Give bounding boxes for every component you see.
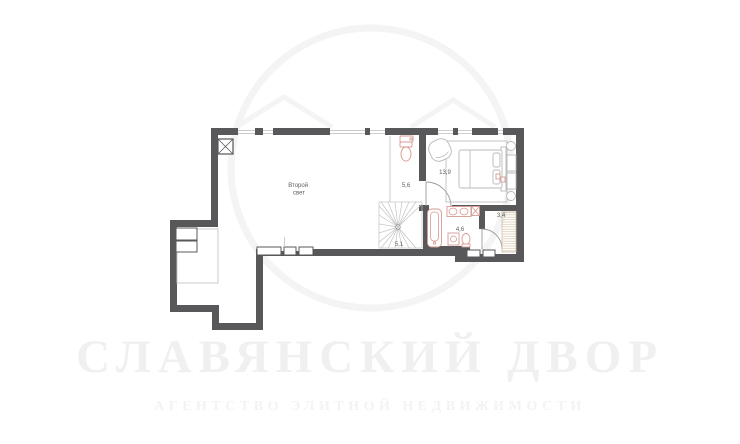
- room-area-hall: 3,4: [497, 213, 506, 219]
- duct-box: [176, 228, 197, 240]
- armchair: [426, 136, 454, 164]
- bedside-item: [496, 174, 500, 179]
- pillow: [493, 153, 500, 167]
- double-washbasin: [447, 207, 471, 217]
- bed: [459, 147, 506, 191]
- duct-box: [176, 241, 197, 252]
- room-area-stairs: 5,1: [395, 242, 404, 248]
- bathtub: [428, 209, 442, 247]
- dresser: [507, 155, 516, 171]
- bidet: [462, 234, 470, 248]
- bottom-windows: [257, 237, 313, 255]
- room-area-wc: 5,6: [402, 183, 411, 189]
- nightstand: [507, 192, 516, 201]
- bedside-item: [501, 177, 505, 182]
- wc-fixtures: [400, 136, 413, 161]
- room-label-second-light: Второй свет: [288, 182, 310, 197]
- nightstand: [507, 142, 516, 151]
- toilet-2: [448, 233, 459, 245]
- floorplan-canvas: СЛАВЯНСКИЙ ДВОР АГЕНТСТВО ЭЛИТНОЙ НЕДВИЖ…: [0, 0, 740, 444]
- room-area-bedroom: 13,9: [439, 170, 451, 176]
- wc-shelf: [400, 136, 413, 142]
- bathroom-fixtures: [428, 207, 480, 248]
- room-area-bathroom: 4,6: [456, 227, 465, 233]
- dresser: [507, 173, 516, 189]
- balcony: [176, 228, 218, 283]
- floorplan-drawing: Второй свет 5,6 13,9 3,4 4,6 5,1: [0, 0, 740, 444]
- shaft-symbol: [218, 139, 233, 154]
- washing-machine: [472, 207, 480, 216]
- toilet: [400, 142, 412, 161]
